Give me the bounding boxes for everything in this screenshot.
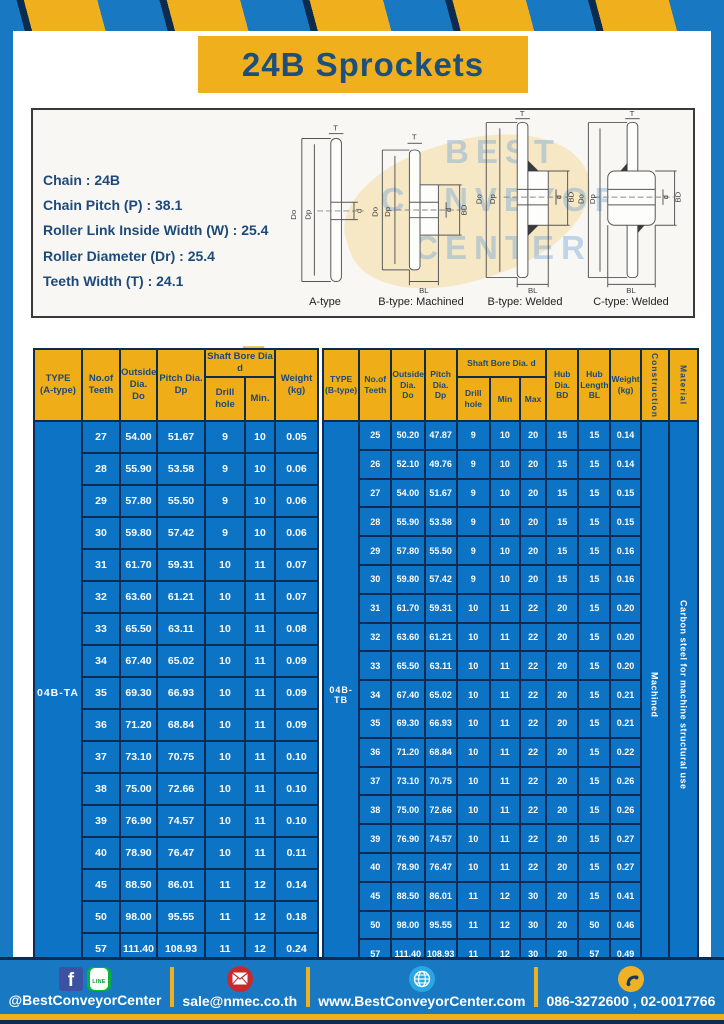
- data-cell: 0.09: [275, 677, 318, 709]
- diagram-b-type-welded: T Do Dp d BD BL: [473, 109, 577, 308]
- data-cell: 0.07: [275, 549, 318, 581]
- phone-numbers: 086-3272600 , 02-0017766: [546, 993, 715, 1009]
- b-type-welded-drawing-icon: T Do Dp d BD BL: [473, 109, 577, 295]
- column-header-outside-dia: Outside Dia. Do: [391, 349, 424, 421]
- data-cell: 86.01: [425, 882, 457, 911]
- data-cell: 20: [546, 824, 578, 853]
- data-cell: 72.66: [425, 795, 457, 824]
- data-cell: 37: [82, 741, 120, 773]
- data-cell: 88.50: [391, 882, 424, 911]
- data-cell: 39: [359, 824, 391, 853]
- column-header-hub-dia: Hub Dia. BD: [546, 349, 578, 421]
- data-cell: 20: [546, 853, 578, 882]
- data-cell: 15: [578, 709, 610, 738]
- svg-text:Do: Do: [371, 207, 380, 217]
- data-cell: 59.80: [120, 517, 157, 549]
- data-cell: 61.21: [157, 581, 205, 613]
- data-cell: 74.57: [157, 805, 205, 837]
- data-cell: 40: [359, 853, 391, 882]
- footer-social: f LINE @BestConveyorCenter: [9, 967, 162, 1008]
- data-cell: 20: [520, 536, 546, 565]
- column-header-pitch-dia: Pitch Dia. Dp: [425, 349, 457, 421]
- data-cell: 10: [457, 651, 490, 680]
- data-cell: 9: [205, 485, 245, 517]
- data-cell: 55.90: [120, 453, 157, 485]
- data-cell: 38: [82, 773, 120, 805]
- data-cell: 11: [205, 901, 245, 933]
- svg-text:d: d: [554, 195, 563, 199]
- email-address: sale@nmec.co.th: [182, 993, 297, 1009]
- data-cell: 68.84: [157, 709, 205, 741]
- data-cell: 20: [520, 479, 546, 508]
- footer-divider: [534, 967, 538, 1007]
- sprocket-table-b-type: TYPE (B-type) No.of Teeth Outside Dia. D…: [322, 348, 699, 969]
- data-cell: 9: [205, 517, 245, 549]
- data-cell: 0.08: [275, 613, 318, 645]
- data-cell: 10: [457, 680, 490, 709]
- data-cell: 61.70: [391, 594, 424, 623]
- footer-divider: [306, 967, 310, 1007]
- data-cell: 34: [82, 645, 120, 677]
- svg-text:Dp: Dp: [588, 194, 597, 204]
- data-cell: 0.09: [275, 709, 318, 741]
- data-cell: 10: [205, 741, 245, 773]
- data-cell: 10: [205, 677, 245, 709]
- data-cell: 20: [546, 594, 578, 623]
- data-cell: 11: [490, 651, 520, 680]
- svg-text:BD: BD: [459, 204, 468, 215]
- data-cell: 76.90: [391, 824, 424, 853]
- data-cell: 75.00: [391, 795, 424, 824]
- diagram-caption: C-type: Welded: [593, 296, 669, 308]
- data-cell: 67.40: [391, 680, 424, 709]
- data-cell: 15: [546, 536, 578, 565]
- data-cell: 15: [578, 738, 610, 767]
- data-cell: 28: [359, 507, 391, 536]
- data-cell: 11: [245, 741, 275, 773]
- data-cell: 9: [457, 421, 490, 450]
- data-cell: 9: [457, 536, 490, 565]
- data-cell: 0.09: [275, 645, 318, 677]
- data-cell: 76.47: [425, 853, 457, 882]
- column-header-construction: Construction: [641, 349, 669, 421]
- data-cell: 37: [359, 767, 391, 796]
- data-cell: 51.67: [157, 421, 205, 453]
- data-cell: 63.60: [120, 581, 157, 613]
- data-cell: 0.21: [610, 709, 640, 738]
- data-cell: 20: [520, 565, 546, 594]
- data-cell: 10: [490, 507, 520, 536]
- globe-icon: [409, 966, 435, 992]
- data-cell: 11: [457, 882, 490, 911]
- data-cell: 67.40: [120, 645, 157, 677]
- data-cell: 12: [490, 911, 520, 940]
- social-handle: @BestConveyorCenter: [9, 992, 162, 1008]
- data-cell: 11: [245, 581, 275, 613]
- data-cell: 11: [245, 837, 275, 869]
- data-cell: 40: [82, 837, 120, 869]
- data-cell: 31: [82, 549, 120, 581]
- svg-text:d: d: [661, 195, 670, 199]
- column-header-pitch-dia: Pitch Dia. Dp: [157, 349, 205, 421]
- data-cell: 20: [546, 911, 578, 940]
- data-cell: 71.20: [391, 738, 424, 767]
- data-cell: 15: [578, 680, 610, 709]
- data-cell: 61.21: [425, 623, 457, 652]
- data-cell: 53.58: [425, 507, 457, 536]
- sprocket-table-a-type: TYPE (A-type) No.of Teeth Outside Dia. D…: [33, 348, 319, 966]
- data-cell: 50: [359, 911, 391, 940]
- data-cell: 54.00: [391, 479, 424, 508]
- data-cell: 70.75: [157, 741, 205, 773]
- data-cell: 0.22: [610, 738, 640, 767]
- data-cell: 32: [82, 581, 120, 613]
- data-cell: 59.80: [391, 565, 424, 594]
- data-cell: 15: [546, 565, 578, 594]
- column-header-weight: Weight (kg): [275, 349, 318, 421]
- data-cell: 10: [205, 645, 245, 677]
- data-cell: 20: [546, 767, 578, 796]
- data-cell: 95.55: [425, 911, 457, 940]
- data-cell: 63.60: [391, 623, 424, 652]
- svg-text:d: d: [444, 208, 453, 212]
- data-cell: 15: [578, 824, 610, 853]
- data-cell: 57.42: [157, 517, 205, 549]
- data-cell: 15: [578, 507, 610, 536]
- data-cell: 45: [359, 882, 391, 911]
- data-cell: 30: [520, 911, 546, 940]
- data-cell: 0.06: [275, 517, 318, 549]
- data-cell: 55.90: [391, 507, 424, 536]
- svg-text:BL: BL: [528, 286, 538, 295]
- data-cell: 9: [205, 421, 245, 453]
- data-cell: 69.30: [391, 709, 424, 738]
- data-cell: 12: [245, 901, 275, 933]
- diagram-a-type: T Do Dp d A-type: [281, 123, 369, 308]
- data-cell: 0.14: [610, 450, 640, 479]
- data-cell: 95.55: [157, 901, 205, 933]
- spec-line-width: Roller Link Inside Width (W) : 25.4: [43, 218, 281, 243]
- data-cell: 15: [578, 450, 610, 479]
- data-cell: 15: [578, 853, 610, 882]
- data-cell: 10: [457, 767, 490, 796]
- data-cell: 11: [490, 709, 520, 738]
- spec-line-pitch: Chain Pitch (P) : 38.1: [43, 193, 281, 218]
- data-cell: 15: [578, 882, 610, 911]
- data-cell: 0.41: [610, 882, 640, 911]
- data-cell: 20: [546, 651, 578, 680]
- data-cell: 11: [205, 869, 245, 901]
- data-cell: 65.50: [391, 651, 424, 680]
- data-cell: 35: [82, 677, 120, 709]
- data-cell: 59.31: [425, 594, 457, 623]
- data-cell: 73.10: [391, 767, 424, 796]
- data-cell: 10: [490, 450, 520, 479]
- c-type-welded-drawing-icon: T Do Dp d BD BL: [577, 109, 685, 295]
- column-header-type: TYPE (A-type): [34, 349, 82, 421]
- data-cell: 10: [205, 805, 245, 837]
- data-cell: 36: [359, 738, 391, 767]
- data-cell: 0.05: [275, 421, 318, 453]
- chain-specs: Chain : 24B Chain Pitch (P) : 38.1 Rolle…: [33, 110, 281, 316]
- data-cell: 38: [359, 795, 391, 824]
- data-cell: 27: [82, 421, 120, 453]
- footer-divider: [170, 967, 174, 1007]
- svg-text:BL: BL: [626, 286, 636, 295]
- data-cell: 20: [520, 421, 546, 450]
- data-cell: 30: [82, 517, 120, 549]
- column-header-max: Max: [520, 377, 546, 421]
- data-cell: 10: [457, 853, 490, 882]
- data-cell: 22: [520, 824, 546, 853]
- data-cell: 54.00: [120, 421, 157, 453]
- data-cell: 0.16: [610, 536, 640, 565]
- table-a-body: 04B-TA2754.0051.679100.052855.9053.58910…: [34, 421, 318, 965]
- data-cell: 31: [359, 594, 391, 623]
- data-cell: 10: [205, 773, 245, 805]
- data-cell: 0.15: [610, 479, 640, 508]
- data-cell: 78.90: [391, 853, 424, 882]
- diagram-c-type-welded: T Do Dp d BD BL: [577, 109, 685, 308]
- data-cell: 10: [205, 549, 245, 581]
- data-cell: 20: [520, 507, 546, 536]
- data-cell: 27: [359, 479, 391, 508]
- data-cell: 25: [359, 421, 391, 450]
- diagram-caption: A-type: [309, 296, 341, 308]
- data-cell: 0.14: [610, 421, 640, 450]
- data-cell: 12: [245, 869, 275, 901]
- data-cell: 29: [82, 485, 120, 517]
- column-header-material: Material: [669, 349, 698, 421]
- data-cell: 30: [359, 565, 391, 594]
- svg-text:BD: BD: [673, 191, 682, 202]
- data-cell: 0.06: [275, 453, 318, 485]
- data-cell: 57.80: [391, 536, 424, 565]
- data-cell: 22: [520, 623, 546, 652]
- column-header-min: Min: [490, 377, 520, 421]
- data-cell: 15: [578, 651, 610, 680]
- svg-text:BD: BD: [566, 191, 575, 202]
- bottom-navy-bar: [0, 1020, 724, 1024]
- column-header-drill-hole: Drill hole: [457, 377, 490, 421]
- data-cell: 11: [245, 805, 275, 837]
- data-cell: 0.46: [610, 911, 640, 940]
- data-cell: 68.84: [425, 738, 457, 767]
- data-cell: 10: [457, 623, 490, 652]
- data-cell: 10: [205, 709, 245, 741]
- data-cell: 0.16: [610, 565, 640, 594]
- data-cell: 11: [490, 680, 520, 709]
- data-cell: 11: [490, 623, 520, 652]
- data-cell: 47.87: [425, 421, 457, 450]
- type-cell-b: 04B-TB: [323, 421, 359, 968]
- data-cell: 15: [578, 795, 610, 824]
- data-cell: 33: [82, 613, 120, 645]
- data-cell: 10: [245, 421, 275, 453]
- svg-text:d: d: [355, 209, 364, 213]
- data-cell: 11: [490, 824, 520, 853]
- table-b-body: 04B-TB2550.2047.879102015150.14MachinedC…: [323, 421, 698, 968]
- data-cell: 59.31: [157, 549, 205, 581]
- data-cell: 98.00: [120, 901, 157, 933]
- data-cell: 15: [578, 536, 610, 565]
- data-cell: 11: [490, 853, 520, 882]
- data-cell: 32: [359, 623, 391, 652]
- footer-phone: 086-3272600 , 02-0017766: [546, 966, 715, 1009]
- data-cell: 9: [457, 479, 490, 508]
- data-cell: 9: [457, 507, 490, 536]
- phone-icon: [618, 966, 644, 992]
- data-cell: 69.30: [120, 677, 157, 709]
- footer-email: sale@nmec.co.th: [182, 966, 297, 1009]
- data-cell: 39: [82, 805, 120, 837]
- data-cell: 0.21: [610, 680, 640, 709]
- data-cell: 20: [520, 450, 546, 479]
- website-url: www.BestConveyorCenter.com: [318, 993, 525, 1009]
- data-cell: 10: [490, 479, 520, 508]
- facebook-icon: f: [59, 967, 83, 991]
- data-cell: 15: [578, 565, 610, 594]
- data-cell: 11: [490, 795, 520, 824]
- data-cell: 0.14: [275, 869, 318, 901]
- sprocket-diagrams: T Do Dp d A-type T: [281, 110, 693, 316]
- data-cell: 10: [457, 594, 490, 623]
- data-cell: 55.50: [425, 536, 457, 565]
- data-cell: 49.76: [425, 450, 457, 479]
- data-cell: 11: [490, 738, 520, 767]
- diagram-caption: B-type: Welded: [487, 296, 562, 308]
- svg-text:Dp: Dp: [383, 207, 392, 217]
- data-cell: 20: [546, 795, 578, 824]
- data-cell: 0.10: [275, 741, 318, 773]
- data-cell: 75.00: [120, 773, 157, 805]
- data-cell: 53.58: [157, 453, 205, 485]
- svg-text:T: T: [520, 109, 525, 118]
- table-b-header: TYPE (B-type) No.of Teeth Outside Dia. D…: [323, 349, 698, 421]
- data-cell: 86.01: [157, 869, 205, 901]
- data-cell: 0.11: [275, 837, 318, 869]
- data-cell: 10: [205, 581, 245, 613]
- data-cell: 30: [520, 882, 546, 911]
- spec-line-chain: Chain : 24B: [43, 168, 281, 193]
- data-cell: 20: [546, 882, 578, 911]
- data-cell: 10: [205, 613, 245, 645]
- material-cell: Carbon steel for machine structural use: [669, 421, 698, 968]
- data-cell: 61.70: [120, 549, 157, 581]
- data-cell: 22: [520, 738, 546, 767]
- data-cell: 10: [457, 795, 490, 824]
- column-header-shaft-bore: Shaft Bore Dia d: [205, 349, 275, 377]
- data-cell: 45: [82, 869, 120, 901]
- data-cell: 11: [245, 677, 275, 709]
- table-a-header: TYPE (A-type) No.of Teeth Outside Dia. D…: [34, 349, 318, 421]
- top-stripe-band: [0, 0, 724, 31]
- data-cell: 10: [205, 837, 245, 869]
- svg-text:BL: BL: [419, 286, 429, 295]
- data-cell: 10: [457, 709, 490, 738]
- data-cell: 11: [490, 767, 520, 796]
- column-header-min: Min.: [245, 377, 275, 421]
- data-cell: 11: [245, 613, 275, 645]
- data-cell: 15: [578, 421, 610, 450]
- data-cell: 15: [578, 767, 610, 796]
- a-type-drawing-icon: T Do Dp d: [281, 123, 369, 295]
- data-cell: 0.27: [610, 853, 640, 882]
- data-cell: 65.02: [157, 645, 205, 677]
- footer-website: www.BestConveyorCenter.com: [318, 966, 525, 1009]
- data-cell: 15: [546, 421, 578, 450]
- data-cell: 20: [546, 738, 578, 767]
- data-cell: 0.26: [610, 767, 640, 796]
- data-cell: 11: [245, 645, 275, 677]
- svg-text:Do: Do: [289, 210, 298, 220]
- data-cell: 88.50: [120, 869, 157, 901]
- data-cell: 22: [520, 594, 546, 623]
- table-row: 04B-TB2550.2047.879102015150.14MachinedC…: [323, 421, 698, 450]
- data-cell: 0.27: [610, 824, 640, 853]
- data-cell: 0.10: [275, 773, 318, 805]
- column-header-hub-length: Hub Length BL: [578, 349, 610, 421]
- data-cell: 0.20: [610, 623, 640, 652]
- data-cell: 0.26: [610, 795, 640, 824]
- table-row: 04B-TA2754.0051.679100.05: [34, 421, 318, 453]
- data-cell: 22: [520, 853, 546, 882]
- data-cell: 15: [546, 479, 578, 508]
- column-header-weight: Weight (kg): [610, 349, 640, 421]
- data-cell: 63.11: [157, 613, 205, 645]
- data-cell: 9: [457, 450, 490, 479]
- data-cell: 74.57: [425, 824, 457, 853]
- data-cell: 10: [457, 824, 490, 853]
- spec-line-roller: Roller Diameter (Dr) : 25.4: [43, 244, 281, 269]
- diagram-caption: B-type: Machined: [378, 296, 464, 308]
- data-cell: 33: [359, 651, 391, 680]
- svg-text:T: T: [630, 109, 635, 118]
- line-app-icon: LINE: [87, 967, 111, 991]
- data-cell: 10: [245, 453, 275, 485]
- data-cell: 11: [245, 773, 275, 805]
- spec-line-teeth: Teeth Width (T) : 24.1: [43, 269, 281, 294]
- data-cell: 73.10: [120, 741, 157, 773]
- data-cell: 55.50: [157, 485, 205, 517]
- data-cell: 70.75: [425, 767, 457, 796]
- data-cell: 22: [520, 680, 546, 709]
- data-cell: 20: [546, 680, 578, 709]
- data-cell: 11: [245, 549, 275, 581]
- data-cell: 9: [205, 453, 245, 485]
- data-cell: 20: [546, 623, 578, 652]
- data-cell: 72.66: [157, 773, 205, 805]
- data-cell: 26: [359, 450, 391, 479]
- data-cell: 22: [520, 651, 546, 680]
- data-cell: 10: [457, 738, 490, 767]
- title-banner: 24B Sprockets: [198, 36, 528, 93]
- data-cell: 9: [457, 565, 490, 594]
- data-cell: 51.67: [425, 479, 457, 508]
- column-header-type: TYPE (B-type): [323, 349, 359, 421]
- data-cell: 65.02: [425, 680, 457, 709]
- data-cell: 10: [490, 421, 520, 450]
- data-cell: 11: [490, 594, 520, 623]
- data-cell: 10: [245, 517, 275, 549]
- data-cell: 78.90: [120, 837, 157, 869]
- data-cell: 52.10: [391, 450, 424, 479]
- data-cell: 50: [578, 911, 610, 940]
- data-cell: 34: [359, 680, 391, 709]
- svg-text:Do: Do: [474, 194, 483, 204]
- data-cell: 50: [82, 901, 120, 933]
- data-cell: 66.93: [157, 677, 205, 709]
